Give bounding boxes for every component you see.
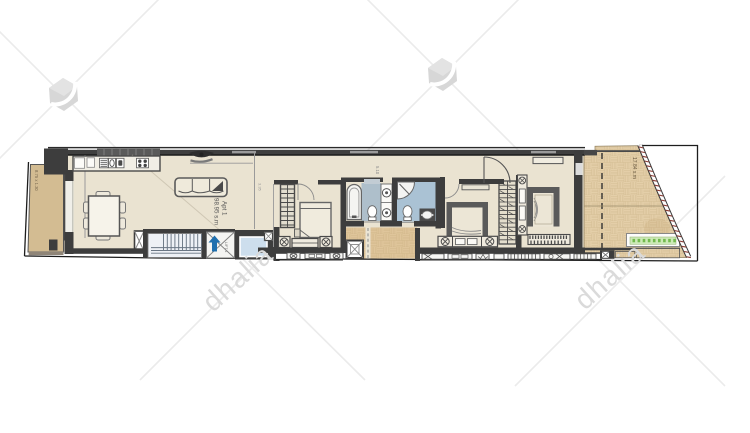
- svg-text:Apt 1: Apt 1: [221, 201, 228, 216]
- svg-text:3.35: 3.35: [258, 183, 263, 192]
- svg-text:5.10: 5.10: [375, 166, 380, 175]
- svg-text:17.84 s.m: 17.84 s.m: [631, 157, 637, 179]
- svg-text:98.95 s.m: 98.95 s.m: [213, 198, 220, 225]
- svg-text:LIFT 1: LIFT 1: [224, 242, 228, 252]
- svg-text:8.75 x 1.30: 8.75 x 1.30: [34, 170, 39, 191]
